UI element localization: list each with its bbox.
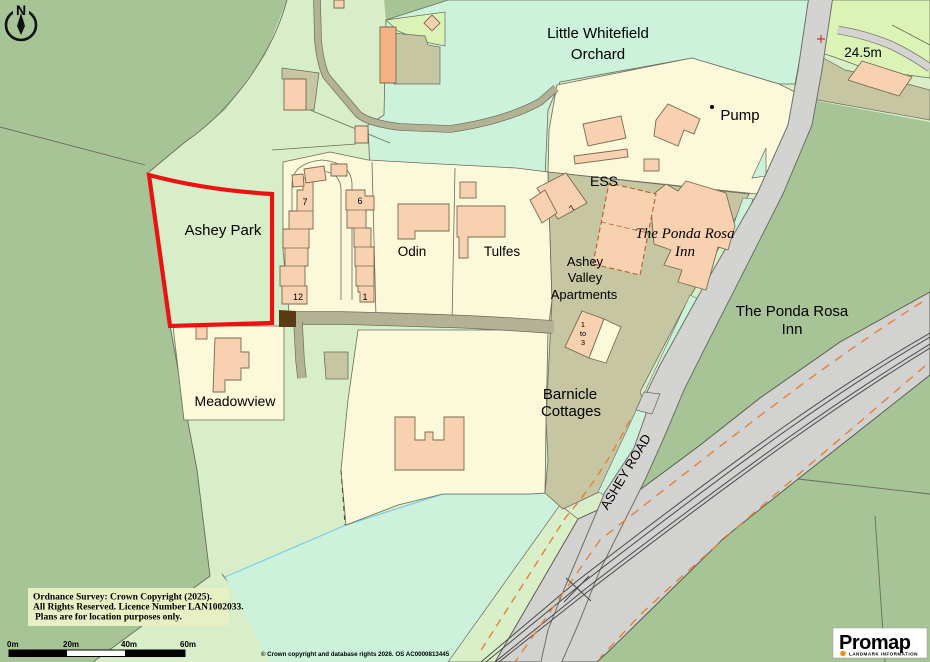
svg-text:Meadowview: Meadowview [195,393,277,409]
svg-text:1: 1 [581,320,585,329]
svg-text:The Ponda Rosa: The Ponda Rosa [736,303,849,320]
svg-text:Inn: Inn [674,244,695,260]
svg-text:© Crown copyright and database: © Crown copyright and database rights 20… [261,651,450,658]
svg-text:0m: 0m [7,640,19,649]
svg-text:Cottages: Cottages [541,403,601,420]
svg-text:Ordnance Survey: Crown Copyrig: Ordnance Survey: Crown Copyright (2025). [33,592,212,603]
svg-text:Apartments: Apartments [551,287,618,302]
svg-text:60m: 60m [180,640,196,649]
svg-text:12: 12 [293,292,303,302]
svg-text:Ashey Park: Ashey Park [185,222,262,239]
svg-text:20m: 20m [63,640,79,649]
svg-text:The Ponda Rosa: The Ponda Rosa [635,226,734,242]
svg-text:Little Whitefield: Little Whitefield [547,25,649,42]
svg-text:3: 3 [581,338,585,347]
svg-text:40m: 40m [121,640,137,649]
svg-text:7: 7 [302,197,307,207]
svg-text:LANDMARK INFORMATION: LANDMARK INFORMATION [849,652,918,657]
svg-text:Tulfes: Tulfes [484,244,521,259]
svg-text:Odin: Odin [398,244,427,259]
svg-text:Plans are for location purpose: Plans are for location purposes only. [35,613,182,623]
svg-text:ESS: ESS [590,173,618,189]
svg-text:Barnicle: Barnicle [543,386,597,403]
svg-text:Valley: Valley [568,270,603,285]
svg-text:Ashey: Ashey [567,254,604,269]
svg-text:All Rights Reserved. Licence N: All Rights Reserved. Licence Number LAN1… [33,603,244,613]
svg-text:Pump: Pump [720,107,759,124]
svg-text:Orchard: Orchard [571,46,625,63]
svg-text:6: 6 [357,196,362,206]
svg-text:1: 1 [362,292,367,302]
svg-text:24.5m: 24.5m [844,45,882,60]
svg-text:Inn: Inn [782,321,803,338]
svg-text:to: to [580,329,586,338]
